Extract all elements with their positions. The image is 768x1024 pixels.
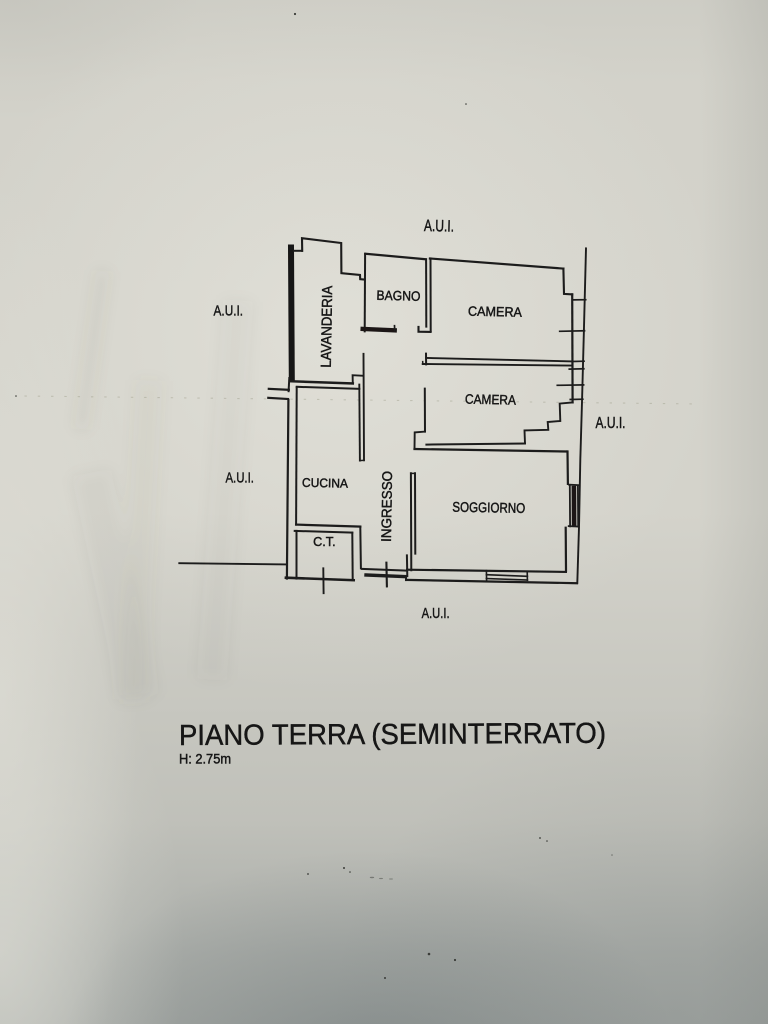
svg-text:CAMERA: CAMERA xyxy=(468,304,522,320)
svg-text:A.U.I.: A.U.I. xyxy=(422,605,450,622)
svg-text:CAMERA: CAMERA xyxy=(465,392,516,408)
svg-text:H: 2.75m: H: 2.75m xyxy=(179,752,231,767)
svg-text:INGRESSO: INGRESSO xyxy=(378,471,395,542)
svg-text:BAGNO: BAGNO xyxy=(376,288,420,304)
svg-text:PIANO TERRA (SEMINTERRATO): PIANO TERRA (SEMINTERRATO) xyxy=(179,718,606,752)
svg-text:LAVANDERIA: LAVANDERIA xyxy=(319,285,336,368)
svg-text:C.T.: C.T. xyxy=(313,534,336,549)
svg-text:A.U.I.: A.U.I. xyxy=(424,217,454,236)
svg-text:SOGGIORNO: SOGGIORNO xyxy=(452,499,525,516)
svg-text:CUCINA: CUCINA xyxy=(302,476,349,491)
svg-text:A.U.I.: A.U.I. xyxy=(596,415,626,432)
